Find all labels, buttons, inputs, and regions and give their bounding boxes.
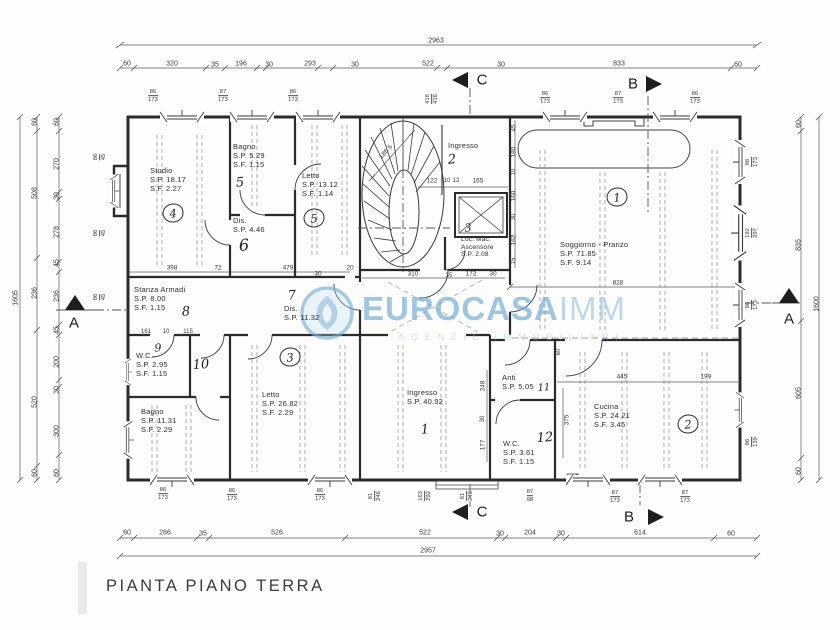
watermark-logo-icon <box>298 284 356 342</box>
watermark-brand-suffix: IMM <box>559 290 626 327</box>
section-marker-a-right: A <box>784 311 794 328</box>
section-marker-c-bottom: C <box>477 504 488 521</box>
section-marker-b-top: B <box>628 76 638 93</box>
watermark-brand: EUROCASAIMM <box>362 290 626 328</box>
section-marker-b-bottom: B <box>624 509 634 526</box>
section-marker-a-left: A <box>69 315 79 332</box>
page-title: PIANTA PIANO TERRA <box>106 577 325 596</box>
watermark: EUROCASAIMM AGENZIE IMMOBILIARI <box>298 282 628 352</box>
watermark-brand-text: EUROCASA <box>362 290 559 327</box>
elevator-shaft <box>455 193 507 237</box>
scan-smudge <box>78 562 87 614</box>
watermark-subtitle: AGENZIE IMMOBILIARI <box>398 332 624 343</box>
section-marker-c-top: C <box>477 72 488 89</box>
floor-plan-page: EUROCASAIMM AGENZIE IMMOBILIARI Studio S… <box>0 0 840 630</box>
